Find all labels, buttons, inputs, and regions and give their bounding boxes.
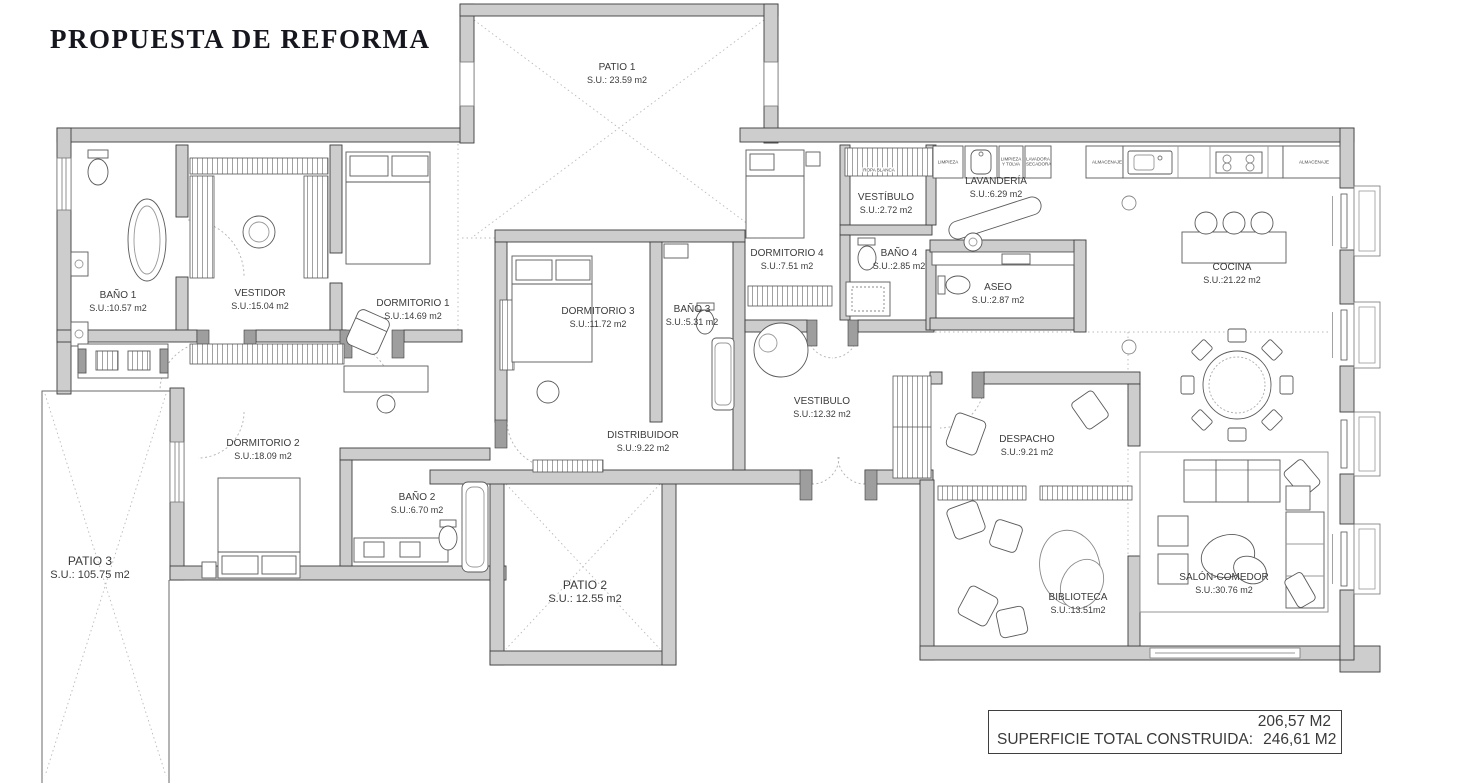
room-label-vestibulo: VESTIBULO S.U.:12.32 m2: [793, 396, 851, 420]
room-area: S.U.:9.21 m2: [999, 447, 1054, 458]
room-area: S.U.:12.32 m2: [793, 409, 851, 420]
room-name: VESTIDOR: [231, 288, 289, 301]
room-label-salon-comedor: SALÓN-COMEDOR S.U.:30.76 m2: [1179, 572, 1268, 596]
room-label-despacho: DESPACHO S.U.:9.21 m2: [999, 434, 1054, 458]
cabinet-label-almacenaje-left: ALMACENAJE: [1092, 159, 1116, 164]
room-area: S.U.:30.76 m2: [1179, 585, 1268, 596]
armchair-icon: [945, 499, 986, 540]
dining-table-icon: [1181, 329, 1293, 441]
side-table-icon: [1286, 486, 1310, 510]
room-label-biblioteca: BIBLIOTECA S.U.:13.51m2: [1049, 592, 1108, 616]
room-name: PATIO 2: [548, 578, 621, 593]
chair-icon: [537, 381, 559, 403]
desk-icon: [344, 366, 428, 392]
room-label-dormitorio-1: DORMITORIO 1 S.U.:14.69 m2: [376, 298, 449, 322]
room-name: VESTÍBULO: [858, 192, 914, 205]
room-label-dormitorio-3: DORMITORIO 3 S.U.:11.72 m2: [561, 306, 634, 330]
room-name: PATIO 1: [587, 62, 647, 75]
room-area: S.U.:2.85 m2: [873, 261, 926, 272]
room-label-lavanderia: LAVANDERÍA S.U.:6.29 m2: [965, 176, 1027, 200]
armchair-icon: [988, 518, 1023, 553]
room-label-cocina: COCINA S.U.:21.22 m2: [1203, 262, 1261, 286]
cabinet-label-lavadora-secadora: LAVADORA SECADORA: [1026, 157, 1050, 168]
bench-icon: [78, 344, 168, 378]
room-label-vestidor: VESTIDOR S.U.:15.04 m2: [231, 288, 289, 312]
room-area: S.U.: 12.55 m2: [548, 593, 621, 607]
room-name: DORMITORIO 1: [376, 298, 449, 311]
room-name: LAVANDERÍA: [965, 176, 1027, 189]
room-name: DORMITORIO 3: [561, 306, 634, 319]
toilet-icon: [938, 276, 970, 294]
cabinet-label-almacenaje-right: ALMACENAJE: [1299, 159, 1323, 164]
armchair-icon: [1158, 516, 1188, 546]
ironing-board-icon: [947, 195, 1044, 242]
patio3-boundary: [42, 391, 170, 783]
kitchen-sink-icon: [1128, 151, 1172, 174]
room-name: ASEO: [972, 282, 1025, 295]
floor-plan-drawing: [0, 0, 1465, 783]
stool-icon: [1223, 212, 1245, 234]
room-area: S.U.:15.04 m2: [231, 301, 289, 312]
room-name: BAÑO 2: [391, 492, 444, 505]
cabinet-label-limpieza-tolva: LIMPIEZA Y TOLVA: [999, 157, 1023, 168]
room-label-dormitorio-2: DORMITORIO 2 S.U.:18.09 m2: [226, 438, 299, 462]
room-name: SALÓN-COMEDOR: [1179, 572, 1268, 585]
room-area: S.U.:9.22 m2: [607, 443, 679, 454]
sofa-icon: [1184, 460, 1280, 502]
toilet-icon: [439, 520, 457, 550]
armchair-icon: [995, 605, 1028, 638]
room-label-vestibulo-small: VESTÍBULO S.U.:2.72 m2: [858, 192, 914, 216]
room-area: S.U.:7.51 m2: [750, 261, 823, 272]
room-area: S.U.:2.87 m2: [972, 295, 1025, 306]
bed-icon: [346, 152, 430, 264]
bathtub-icon: [712, 338, 734, 410]
floor-plan-page: PROPUESTA DE REFORMA PATIO 1 S.U.: 23.59…: [0, 0, 1465, 783]
cabinet-label-ropa-blanca: ROPA BLANCA: [862, 167, 895, 172]
sink-icon: [400, 542, 420, 557]
total-area-value: 246,61 M2: [1263, 731, 1336, 749]
reformed-area-value: 206,57 M2: [997, 713, 1333, 731]
bed-icon: [218, 478, 300, 578]
room-label-bano-1: BAÑO 1 S.U.:10.57 m2: [89, 290, 147, 314]
furniture: [71, 146, 1340, 639]
room-label-patio-2: PATIO 2 S.U.: 12.55 m2: [548, 578, 621, 607]
room-area: S.U.: 105.75 m2: [50, 569, 130, 583]
room-label-aseo: ASEO S.U.:2.87 m2: [972, 282, 1025, 306]
room-area: S.U.:18.09 m2: [226, 451, 299, 462]
sink-icon: [664, 244, 688, 258]
room-name: COCINA: [1203, 262, 1261, 275]
armchair-icon: [945, 412, 987, 457]
room-name: DESPACHO: [999, 434, 1054, 447]
room-area: S.U.:11.72 m2: [561, 319, 634, 330]
nightstand-icon: [806, 152, 820, 166]
nightstand-icon: [202, 562, 216, 578]
room-area: S.U.:2.72 m2: [858, 205, 914, 216]
sink-icon: [364, 542, 384, 557]
room-label-bano-3: BAÑO 3 S.U.:5.31 m2: [666, 304, 719, 328]
room-area: S.U.:13.51m2: [1049, 605, 1108, 616]
room-area: S.U.:6.70 m2: [391, 505, 444, 516]
chair-icon: [1070, 389, 1110, 430]
room-name: BAÑO 4: [873, 248, 926, 261]
room-name: PATIO 3: [50, 554, 130, 569]
armchair-icon: [956, 584, 999, 627]
room-name: DORMITORIO 2: [226, 438, 299, 451]
room-name: BAÑO 1: [89, 290, 147, 303]
bathtub-icon: [462, 482, 488, 572]
room-name: BAÑO 3: [666, 304, 719, 317]
room-name: VESTIBULO: [793, 396, 851, 409]
toilet-icon: [88, 150, 108, 185]
surface-summary-box: 206,57 M2 SUPERFICIE TOTAL CONSTRUIDA: 2…: [988, 710, 1342, 754]
room-name: BIBLIOTECA: [1049, 592, 1108, 605]
room-label-patio-3: PATIO 3 S.U.: 105.75 m2: [50, 554, 130, 583]
room-name: DORMITORIO 4: [750, 248, 823, 261]
room-area: S.U.:5.31 m2: [666, 317, 719, 328]
room-area: S.U.:6.29 m2: [965, 189, 1027, 200]
room-label-dormitorio-4: DORMITORIO 4 S.U.:7.51 m2: [750, 248, 823, 272]
kitchen-island: [1182, 232, 1286, 263]
cabinet-label-limpieza: LIMPIEZA: [936, 159, 960, 164]
bed-icon: [746, 150, 804, 238]
chair-icon: [377, 395, 395, 413]
bathtub-icon: [128, 199, 166, 281]
room-area: S.U.:14.69 m2: [376, 311, 449, 322]
shower-icon: [846, 282, 890, 316]
stool-icon: [1251, 212, 1273, 234]
room-label-bano-4: BAÑO 4 S.U.:2.85 m2: [873, 248, 926, 272]
room-label-bano-2: BAÑO 2 S.U.:6.70 m2: [391, 492, 444, 516]
sink-icon: [1002, 254, 1030, 264]
stove-icon: [1216, 152, 1262, 173]
room-area: S.U.:21.22 m2: [1203, 275, 1261, 286]
room-label-distribuidor: DISTRIBUIDOR S.U.:9.22 m2: [607, 430, 679, 454]
room-label-patio-1: PATIO 1 S.U.: 23.59 m2: [587, 62, 647, 86]
total-area-label: SUPERFICIE TOTAL CONSTRUIDA:: [997, 731, 1253, 749]
stool-icon: [1195, 212, 1217, 234]
page-title: PROPUESTA DE REFORMA: [50, 24, 431, 55]
room-area: S.U.:10.57 m2: [89, 303, 147, 314]
room-area: S.U.: 23.59 m2: [587, 75, 647, 86]
room-name: DISTRIBUIDOR: [607, 430, 679, 443]
